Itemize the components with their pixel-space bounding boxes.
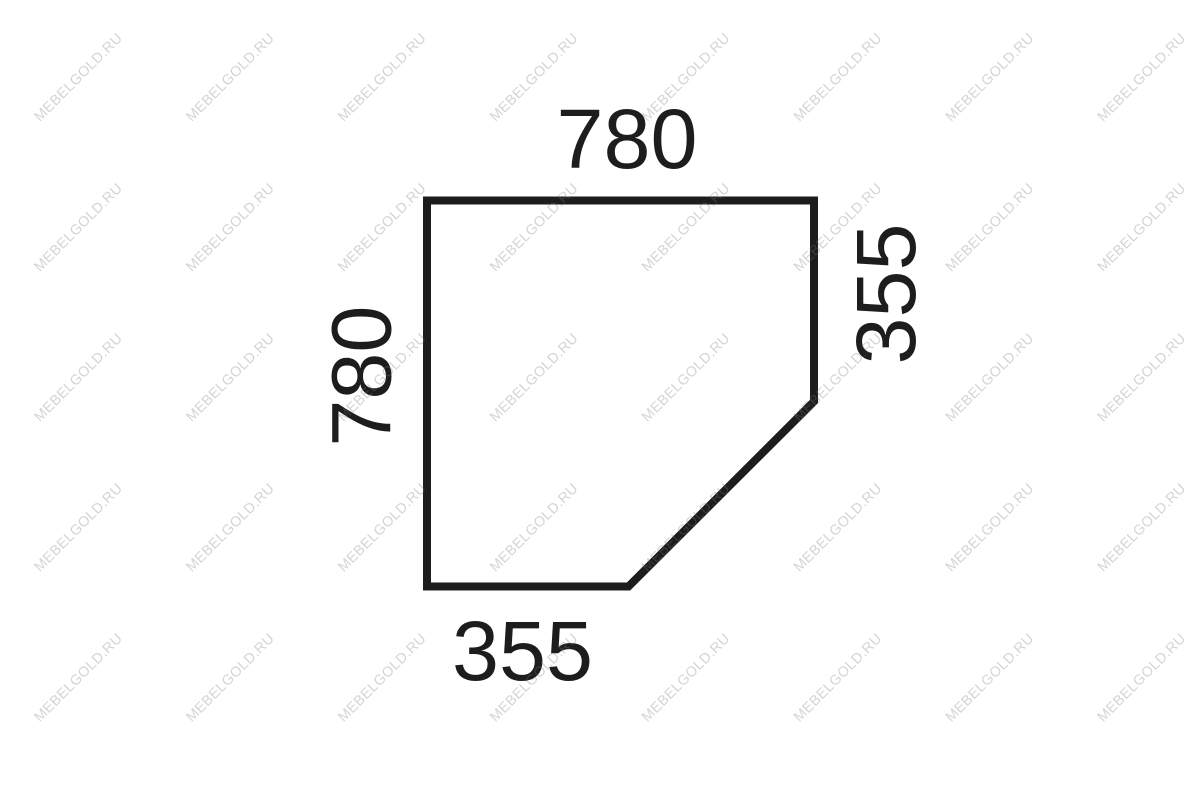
svg-text:MEBELGOLD.RU: MEBELGOLD.RU (183, 180, 278, 275)
svg-text:MEBELGOLD.RU: MEBELGOLD.RU (943, 631, 1038, 726)
svg-text:MEBELGOLD.RU: MEBELGOLD.RU (335, 481, 430, 576)
svg-text:MEBELGOLD.RU: MEBELGOLD.RU (31, 331, 126, 426)
svg-text:MEBELGOLD.RU: MEBELGOLD.RU (335, 30, 430, 125)
svg-text:MEBELGOLD.RU: MEBELGOLD.RU (31, 631, 126, 726)
svg-text:MEBELGOLD.RU: MEBELGOLD.RU (943, 481, 1038, 576)
svg-text:MEBELGOLD.RU: MEBELGOLD.RU (1095, 631, 1190, 726)
svg-text:355: 355 (839, 224, 933, 365)
svg-text:MEBELGOLD.RU: MEBELGOLD.RU (943, 180, 1038, 275)
svg-text:MEBELGOLD.RU: MEBELGOLD.RU (31, 180, 126, 275)
svg-text:MEBELGOLD.RU: MEBELGOLD.RU (1095, 481, 1190, 576)
svg-text:MEBELGOLD.RU: MEBELGOLD.RU (183, 331, 278, 426)
svg-text:MEBELGOLD.RU: MEBELGOLD.RU (335, 631, 430, 726)
svg-text:MEBELGOLD.RU: MEBELGOLD.RU (183, 30, 278, 125)
svg-text:MEBELGOLD.RU: MEBELGOLD.RU (639, 631, 734, 726)
svg-text:MEBELGOLD.RU: MEBELGOLD.RU (791, 481, 886, 576)
svg-text:MEBELGOLD.RU: MEBELGOLD.RU (1095, 30, 1190, 125)
svg-text:MEBELGOLD.RU: MEBELGOLD.RU (1095, 180, 1190, 275)
svg-text:780: 780 (557, 92, 698, 186)
svg-text:MEBELGOLD.RU: MEBELGOLD.RU (183, 631, 278, 726)
svg-text:MEBELGOLD.RU: MEBELGOLD.RU (183, 481, 278, 576)
svg-text:MEBELGOLD.RU: MEBELGOLD.RU (943, 30, 1038, 125)
svg-text:MEBELGOLD.RU: MEBELGOLD.RU (31, 30, 126, 125)
svg-text:MEBELGOLD.RU: MEBELGOLD.RU (943, 331, 1038, 426)
svg-text:MEBELGOLD.RU: MEBELGOLD.RU (335, 180, 430, 275)
svg-text:MEBELGOLD.RU: MEBELGOLD.RU (31, 481, 126, 576)
svg-text:MEBELGOLD.RU: MEBELGOLD.RU (791, 631, 886, 726)
svg-text:MEBELGOLD.RU: MEBELGOLD.RU (1095, 331, 1190, 426)
svg-text:MEBELGOLD.RU: MEBELGOLD.RU (791, 30, 886, 125)
